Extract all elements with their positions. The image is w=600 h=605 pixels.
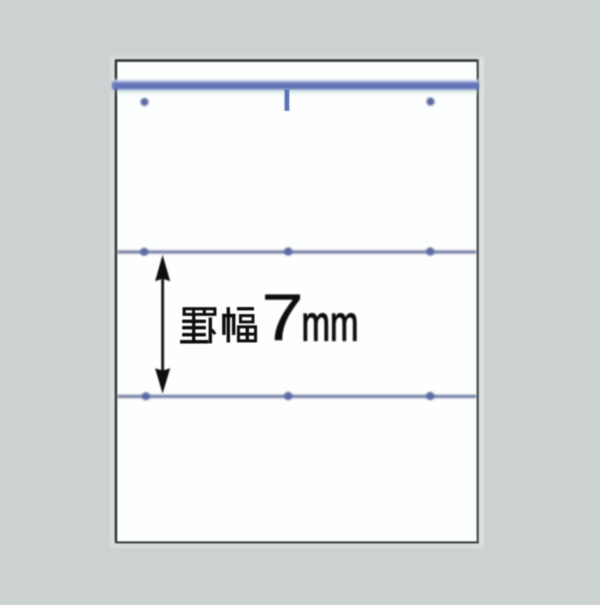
svg-text:mm: mm — [302, 295, 359, 351]
svg-text:7: 7 — [262, 280, 304, 354]
